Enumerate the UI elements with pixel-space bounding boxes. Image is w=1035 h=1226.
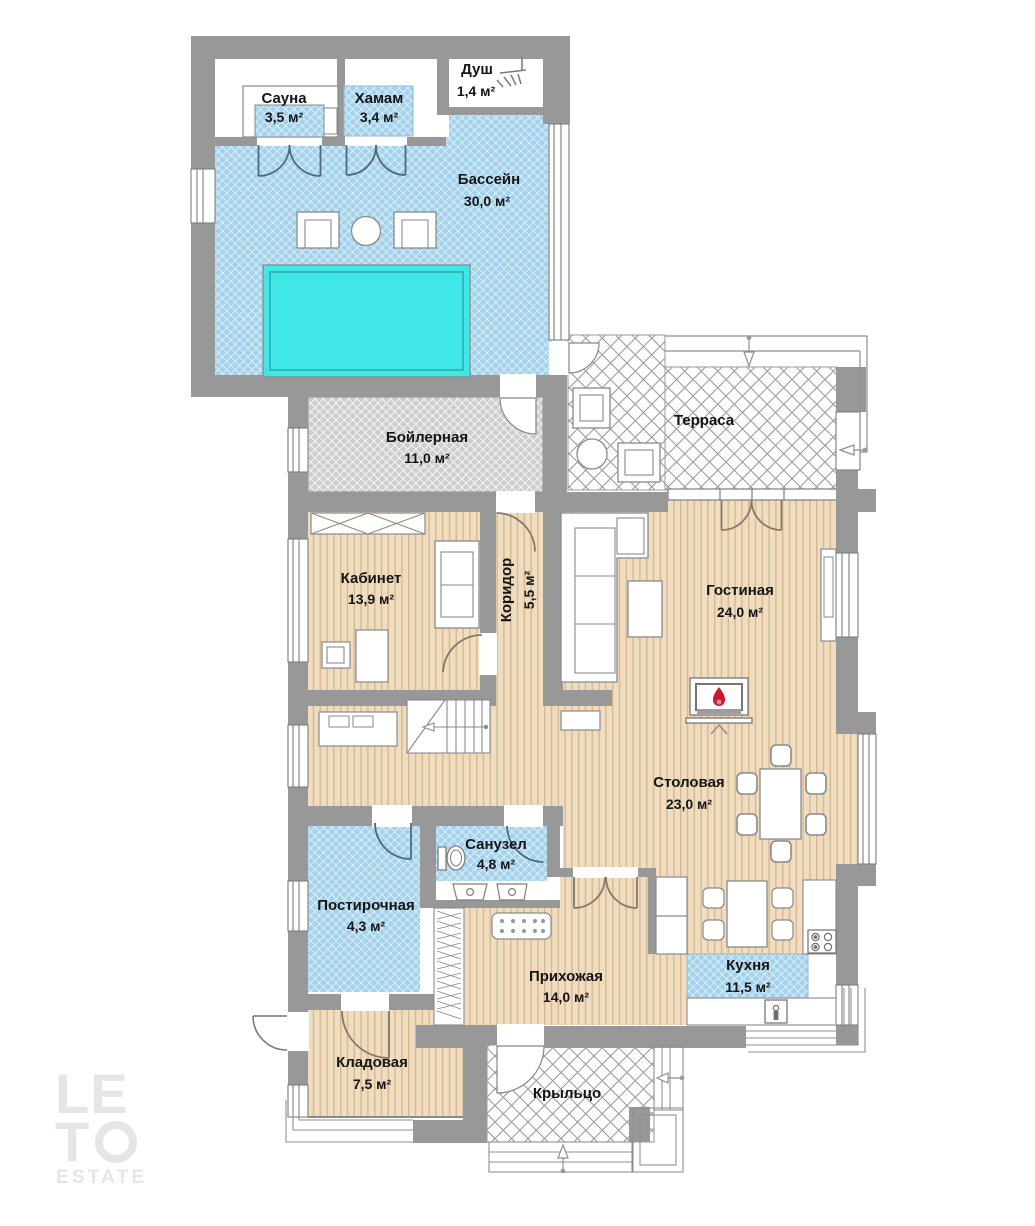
svg-text:5,5 м²: 5,5 м² <box>521 570 537 609</box>
svg-text:Крыльцо: Крыльцо <box>533 1085 601 1102</box>
svg-text:Кабинет: Кабинет <box>341 570 402 587</box>
svg-text:11,5 м²: 11,5 м² <box>725 979 771 995</box>
svg-text:ESTATE: ESTATE <box>56 1167 147 1188</box>
svg-text:Сауна: Сауна <box>261 90 307 107</box>
svg-text:Бассейн: Бассейн <box>458 171 520 188</box>
svg-text:23,0 м²: 23,0 м² <box>666 796 712 812</box>
svg-text:13,9 м²: 13,9 м² <box>348 591 394 607</box>
svg-text:Прихожая: Прихожая <box>529 968 603 985</box>
svg-text:7,5 м²: 7,5 м² <box>353 1076 392 1092</box>
svg-text:3,5 м²: 3,5 м² <box>265 109 304 125</box>
svg-text:Санузел: Санузел <box>465 836 527 853</box>
svg-text:Кладовая: Кладовая <box>336 1054 408 1071</box>
svg-text:Хамам: Хамам <box>355 90 404 107</box>
svg-text:3,4 м²: 3,4 м² <box>360 109 399 125</box>
svg-text:24,0 м²: 24,0 м² <box>717 604 763 620</box>
svg-text:Коридор: Коридор <box>498 558 515 623</box>
svg-text:Столовая: Столовая <box>653 774 724 791</box>
svg-text:Душ: Душ <box>461 61 493 78</box>
svg-text:Терраса: Терраса <box>674 412 735 429</box>
svg-text:14,0 м²: 14,0 м² <box>543 989 589 1005</box>
svg-text:Кухня: Кухня <box>726 957 770 974</box>
svg-text:T: T <box>55 1110 89 1173</box>
svg-text:Гостиная: Гостиная <box>706 582 774 599</box>
svg-text:Постирочная: Постирочная <box>317 897 414 914</box>
svg-text:11,0 м²: 11,0 м² <box>404 450 450 466</box>
svg-text:Бойлерная: Бойлерная <box>386 429 468 446</box>
svg-text:4,8 м²: 4,8 м² <box>477 856 516 872</box>
svg-text:1,4 м²: 1,4 м² <box>457 83 496 99</box>
svg-text:30,0 м²: 30,0 м² <box>464 193 510 209</box>
svg-text:4,3 м²: 4,3 м² <box>347 918 386 934</box>
